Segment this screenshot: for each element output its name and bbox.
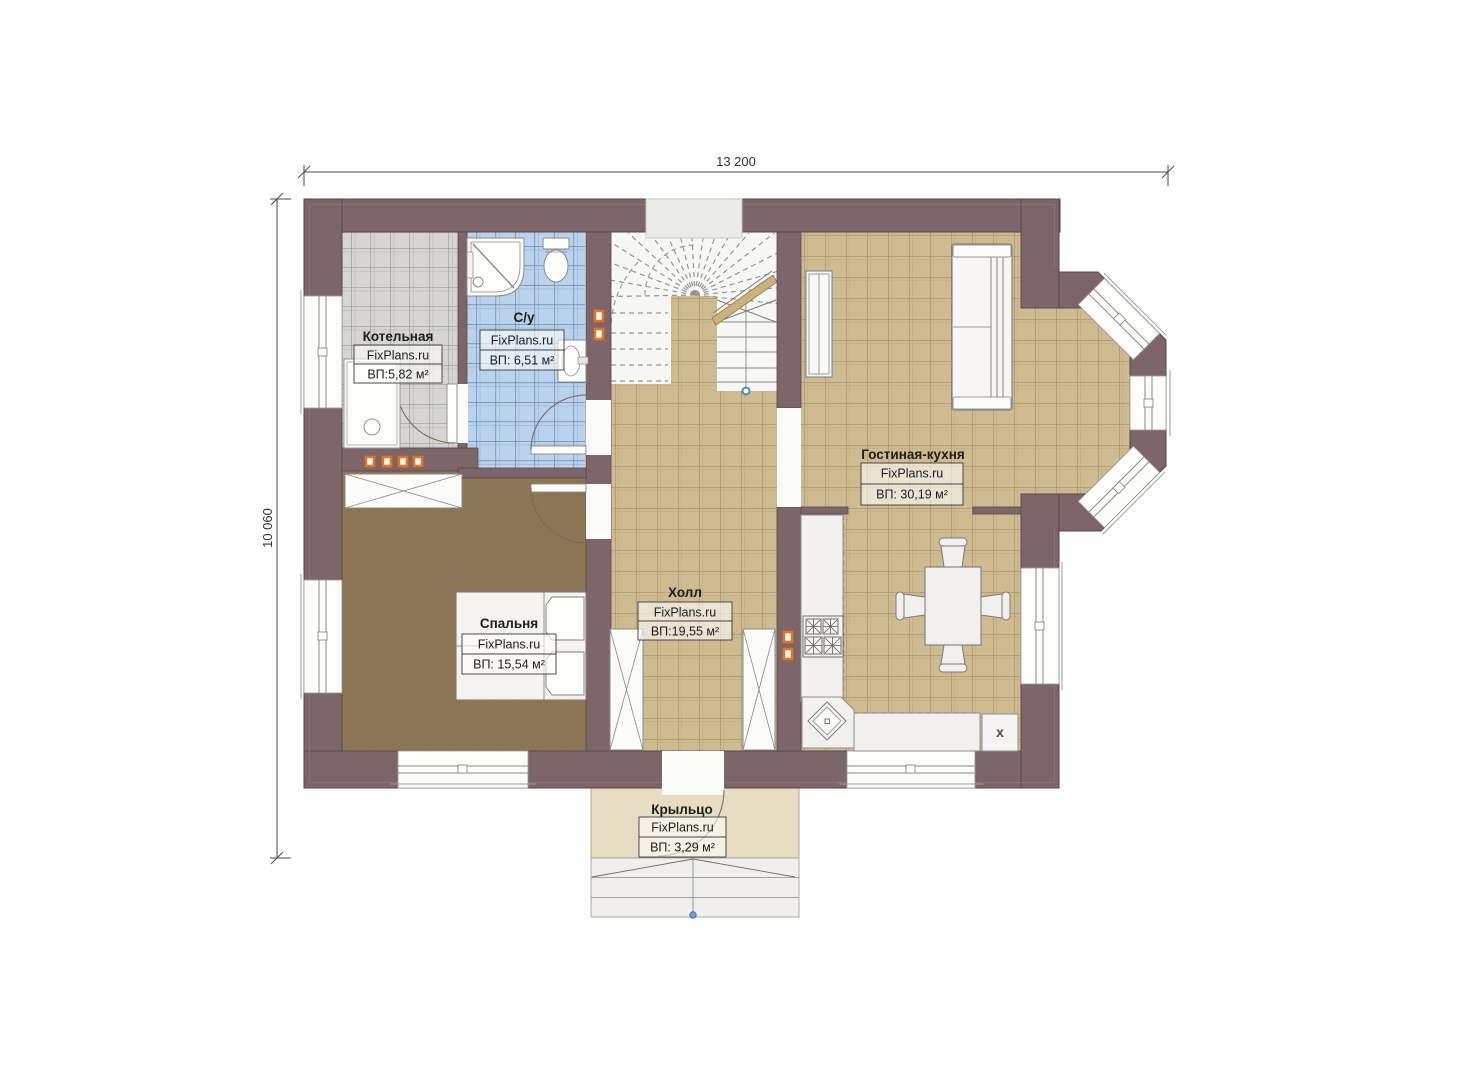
svg-text:Крыльцо: Крыльцо <box>651 802 712 817</box>
svg-text:ВП:5,82 м²: ВП:5,82 м² <box>367 368 428 382</box>
svg-text:Гостиная-кухня: Гостиная-кухня <box>861 447 964 462</box>
svg-text:ВП: 15,54 м²: ВП: 15,54 м² <box>473 658 545 672</box>
svg-text:Спальня: Спальня <box>480 616 538 631</box>
svg-text:ВП:19,55 м²: ВП:19,55 м² <box>651 625 719 639</box>
svg-text:Котельная: Котельная <box>363 329 434 344</box>
svg-text:ВП: 3,29 м²: ВП: 3,29 м² <box>650 841 715 855</box>
svg-text:FixPlans.ru: FixPlans.ru <box>651 821 714 835</box>
svg-text:x: x <box>996 724 1004 740</box>
svg-text:С/у: С/у <box>513 310 535 325</box>
svg-text:ВП: 6,51 м²: ВП: 6,51 м² <box>490 354 555 368</box>
svg-text:FixPlans.ru: FixPlans.ru <box>881 467 944 481</box>
svg-text:FixPlans.ru: FixPlans.ru <box>478 638 541 652</box>
svg-text:10 060: 10 060 <box>260 508 275 548</box>
svg-text:Холл: Холл <box>668 585 702 600</box>
svg-text:FixPlans.ru: FixPlans.ru <box>367 349 430 363</box>
svg-text:FixPlans.ru: FixPlans.ru <box>491 334 554 348</box>
svg-text:13 200: 13 200 <box>716 154 756 169</box>
svg-text:ВП: 30,19 м²: ВП: 30,19 м² <box>876 488 948 502</box>
svg-text:FixPlans.ru: FixPlans.ru <box>654 606 717 620</box>
